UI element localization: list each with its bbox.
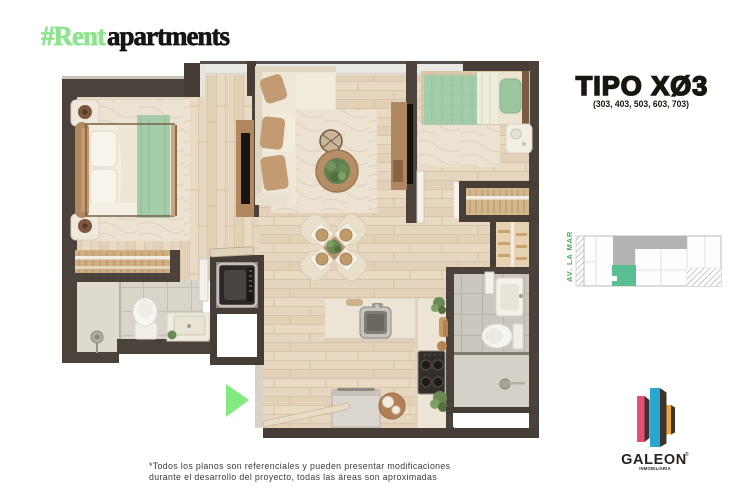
svg-text:#Rent: #Rent xyxy=(41,21,106,51)
svg-text:®: ® xyxy=(685,451,689,458)
svg-text:*Todos los planos son referenc: *Todos los planos son referenciales y pu… xyxy=(149,461,451,471)
svg-text:TIPO XØ3: TIPO XØ3 xyxy=(576,71,709,101)
svg-text:AV. LA MAR: AV. LA MAR xyxy=(565,231,574,282)
svg-text:durante el desarrollo del proy: durante el desarrollo del proyecto, toda… xyxy=(149,472,437,482)
svg-text:apartments: apartments xyxy=(107,21,229,51)
svg-text:(303, 403, 503, 603, 703): (303, 403, 503, 603, 703) xyxy=(593,99,689,110)
svg-text:INMOBILIARIA: INMOBILIARIA xyxy=(639,466,670,471)
